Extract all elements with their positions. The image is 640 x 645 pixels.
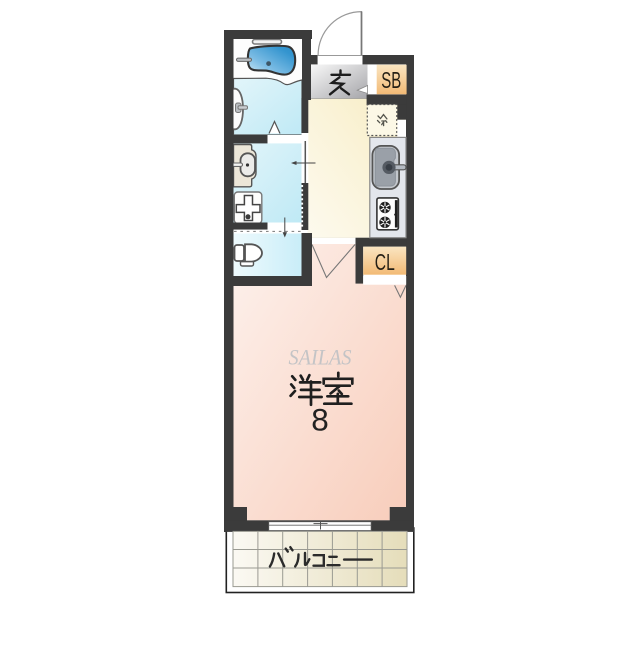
svg-text:8: 8 [311, 402, 329, 438]
svg-text:SB: SB [381, 67, 401, 93]
svg-text:CL: CL [375, 249, 395, 275]
svg-text:SAILAS: SAILAS [289, 345, 352, 370]
